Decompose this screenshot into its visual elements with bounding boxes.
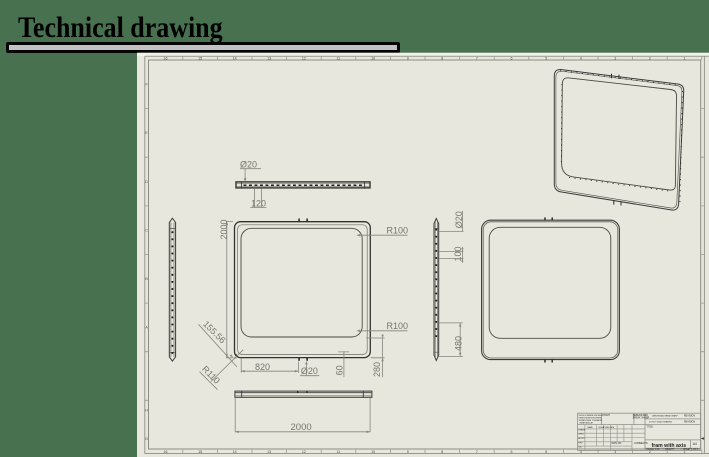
svg-text:REVISION: REVISION <box>684 415 695 417</box>
svg-text:Ø20: Ø20 <box>454 211 464 228</box>
svg-text:C: C <box>145 229 148 233</box>
svg-text:6: 6 <box>511 57 513 61</box>
svg-text:Ø20: Ø20 <box>240 159 257 169</box>
svg-text:NAME: NAME <box>588 426 594 429</box>
svg-text:820: 820 <box>255 362 270 372</box>
svg-text:2000: 2000 <box>219 219 229 239</box>
svg-text:APPV'D: APPV'D <box>578 437 585 440</box>
svg-text:13: 13 <box>267 57 271 61</box>
svg-text:10: 10 <box>371 450 375 454</box>
svg-text:120: 120 <box>251 199 266 209</box>
svg-text:2000: 2000 <box>291 422 312 433</box>
svg-text:14: 14 <box>233 450 237 454</box>
svg-text:16: 16 <box>164 450 168 454</box>
svg-text:MFG: MFG <box>578 442 583 444</box>
svg-text:Ø20: Ø20 <box>301 366 318 376</box>
svg-text:480: 480 <box>453 336 463 351</box>
svg-text:DO NOT SCALE DRAWING: DO NOT SCALE DRAWING <box>649 420 673 423</box>
svg-text:E: E <box>145 131 148 135</box>
svg-text:D: D <box>145 180 148 184</box>
svg-text:COMMENTS:: COMMENTS: <box>634 443 648 445</box>
svg-text:280: 280 <box>372 362 382 377</box>
svg-text:R110: R110 <box>200 364 222 386</box>
svg-text:DEBURR AND BREAK SHARP: DEBURR AND BREAK SHARP <box>652 414 678 417</box>
svg-text:DATE: DATE <box>610 426 615 429</box>
svg-text:11: 11 <box>337 57 341 61</box>
svg-text:DWG NO.: DWG NO. <box>612 443 623 445</box>
svg-text:G: G <box>145 437 148 441</box>
svg-text:100: 100 <box>453 246 463 261</box>
svg-text:DRAWN: DRAWN <box>578 428 585 431</box>
svg-text:2: 2 <box>649 57 651 61</box>
svg-text:REVISION: REVISION <box>684 421 695 423</box>
svg-text:5: 5 <box>545 450 547 454</box>
svg-text:B: B <box>145 277 148 281</box>
svg-text:5: 5 <box>545 57 547 61</box>
svg-text:UNLESS OTHERWISE SPECIFIED:: UNLESS OTHERWISE SPECIFIED: <box>579 415 603 417</box>
svg-text:11: 11 <box>337 450 341 454</box>
svg-text:CHK'D: CHK'D <box>578 434 584 436</box>
svg-text:R100: R100 <box>387 226 409 236</box>
svg-text:7: 7 <box>476 450 478 454</box>
svg-text:SIGNATURE: SIGNATURE <box>599 426 610 429</box>
svg-text:6: 6 <box>511 450 513 454</box>
svg-text:12: 12 <box>302 450 306 454</box>
svg-text:9: 9 <box>407 450 409 454</box>
svg-text:R100: R100 <box>387 321 409 331</box>
svg-text:13: 13 <box>267 450 271 454</box>
svg-text:BREAK SHARP: BREAK SHARP <box>633 416 650 419</box>
svg-text:12: 12 <box>302 57 306 61</box>
svg-text:3: 3 <box>614 57 616 61</box>
svg-text:15: 15 <box>198 450 202 454</box>
svg-text:fram with axis: fram with axis <box>652 443 687 449</box>
svg-text:14: 14 <box>233 57 237 61</box>
svg-text:8: 8 <box>441 57 443 61</box>
svg-text:15: 15 <box>198 57 202 61</box>
svg-text:WEIGHT:: WEIGHT: <box>665 449 675 451</box>
svg-text:A4: A4 <box>693 442 697 446</box>
svg-text:FINISH:: FINISH: <box>602 415 611 417</box>
svg-text:TITLE:: TITLE: <box>647 427 654 429</box>
svg-text:SCALE: 1:50: SCALE: 1:50 <box>646 448 660 451</box>
svg-text:7: 7 <box>476 57 478 61</box>
svg-text:16: 16 <box>164 57 168 61</box>
svg-text:10: 10 <box>371 57 375 61</box>
svg-text:SHEET 1 OF 1: SHEET 1 OF 1 <box>683 449 699 451</box>
svg-text:8: 8 <box>441 450 443 454</box>
svg-text:4: 4 <box>580 57 582 61</box>
svg-text:60: 60 <box>335 365 345 375</box>
svg-text:A: A <box>145 326 148 330</box>
svg-text:H: H <box>145 409 148 413</box>
svg-text:1: 1 <box>684 57 686 61</box>
svg-text:9: 9 <box>407 57 409 61</box>
